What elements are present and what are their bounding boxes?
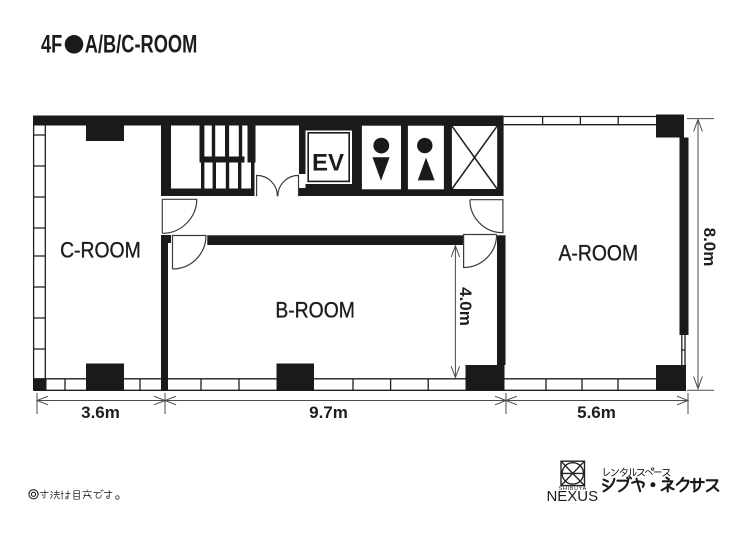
svg-text:3.6m: 3.6m: [81, 403, 120, 422]
svg-text:4.0m: 4.0m: [456, 287, 475, 326]
svg-text:4F: 4F: [41, 30, 62, 59]
svg-text:EV: EV: [312, 150, 344, 177]
svg-text:B-ROOM: B-ROOM: [275, 298, 355, 322]
svg-text:5.6m: 5.6m: [577, 403, 616, 422]
svg-text:A-ROOM: A-ROOM: [559, 241, 639, 265]
svg-text:9.7m: 9.7m: [309, 403, 348, 422]
svg-text:A/B/C-ROOM: A/B/C-ROOM: [85, 30, 197, 59]
svg-text:8.0m: 8.0m: [700, 228, 719, 267]
svg-text:C-ROOM: C-ROOM: [60, 238, 141, 262]
svg-text:NEXUS: NEXUS: [546, 488, 598, 505]
